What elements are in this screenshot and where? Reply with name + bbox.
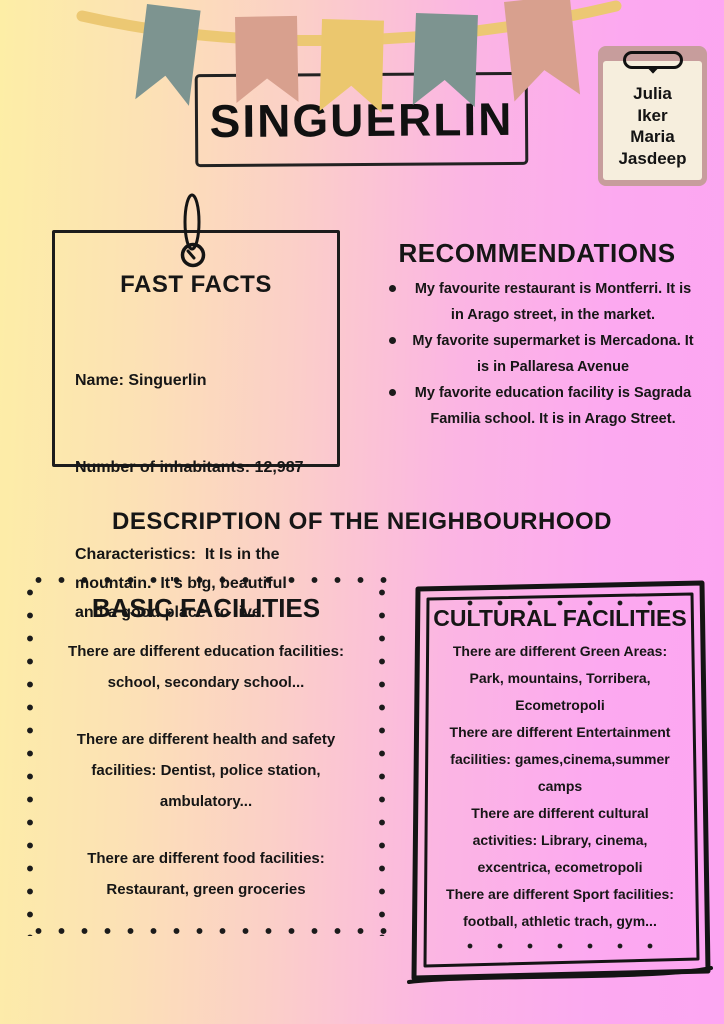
page-title: SINGUERLIN [209,91,513,147]
recommendations-list: My favourite restaurant is Montferri. It… [383,276,723,432]
recommendations-title: RECOMMENDATIONS [367,238,707,269]
cultural-facilities-title: CULTURAL FACILITIES [422,604,698,632]
bunting-rope-line [82,6,616,40]
authors-clipboard: Julia Iker Maria Jasdeep [598,46,707,186]
recommendation-item: My favorite education facility is Sagrad… [383,380,723,432]
basic-facilities-paragraph: There are different health and safety fa… [25,724,387,817]
cultural-facilities-paragraph: There are different cultural activities:… [422,800,698,881]
fast-fact-line: Characteristics: It Is in the mountain. … [75,540,323,627]
cultural-facilities-paragraph: There are different Entertainment facili… [422,719,698,800]
fast-facts-box: FAST FACTS Name: Singuerlin Number of in… [52,230,340,467]
author-names: Julia Iker Maria Jasdeep [598,83,707,169]
fast-facts-body: Name: Singuerlin Number of inhabitants: … [75,308,323,685]
cultural-facilities-paragraph: There are different Sport facilities: fo… [422,881,698,935]
clipboard-clip-icon [623,51,683,69]
fast-fact-line: Name: Singuerlin [75,366,323,395]
fast-fact-line: Number of inhabitants: 12,987 [75,453,323,482]
recommendation-item: My favourite restaurant is Montferri. It… [383,276,723,328]
author-name: Jasdeep [598,148,707,170]
decorative-dots [456,943,664,949]
cultural-facilities-box: CULTURAL FACILITIES There are different … [405,580,715,984]
title-box: SINGUERLIN [195,72,529,167]
cultural-facilities-body: There are different Green Areas: Park, m… [422,638,698,935]
fast-facts-title: FAST FACTS [55,271,337,299]
recommendations-section: RECOMMENDATIONS My favourite restaurant … [383,238,723,432]
author-name: Iker [598,105,707,127]
bunting-flag-1 [135,4,200,106]
author-name: Maria [598,126,707,148]
recommendation-item: My favorite supermarket is Mercadona. It… [383,328,723,380]
neighbourhood-poster: SINGUERLIN Julia Iker Maria Jasdeep FAST… [0,0,724,1024]
author-name: Julia [598,83,707,105]
cultural-facilities-content: CULTURAL FACILITIES There are different … [422,600,698,972]
basic-facilities-paragraph: There are different food facilities: Res… [25,843,387,905]
cultural-facilities-paragraph: There are different Green Areas: Park, m… [422,638,698,719]
